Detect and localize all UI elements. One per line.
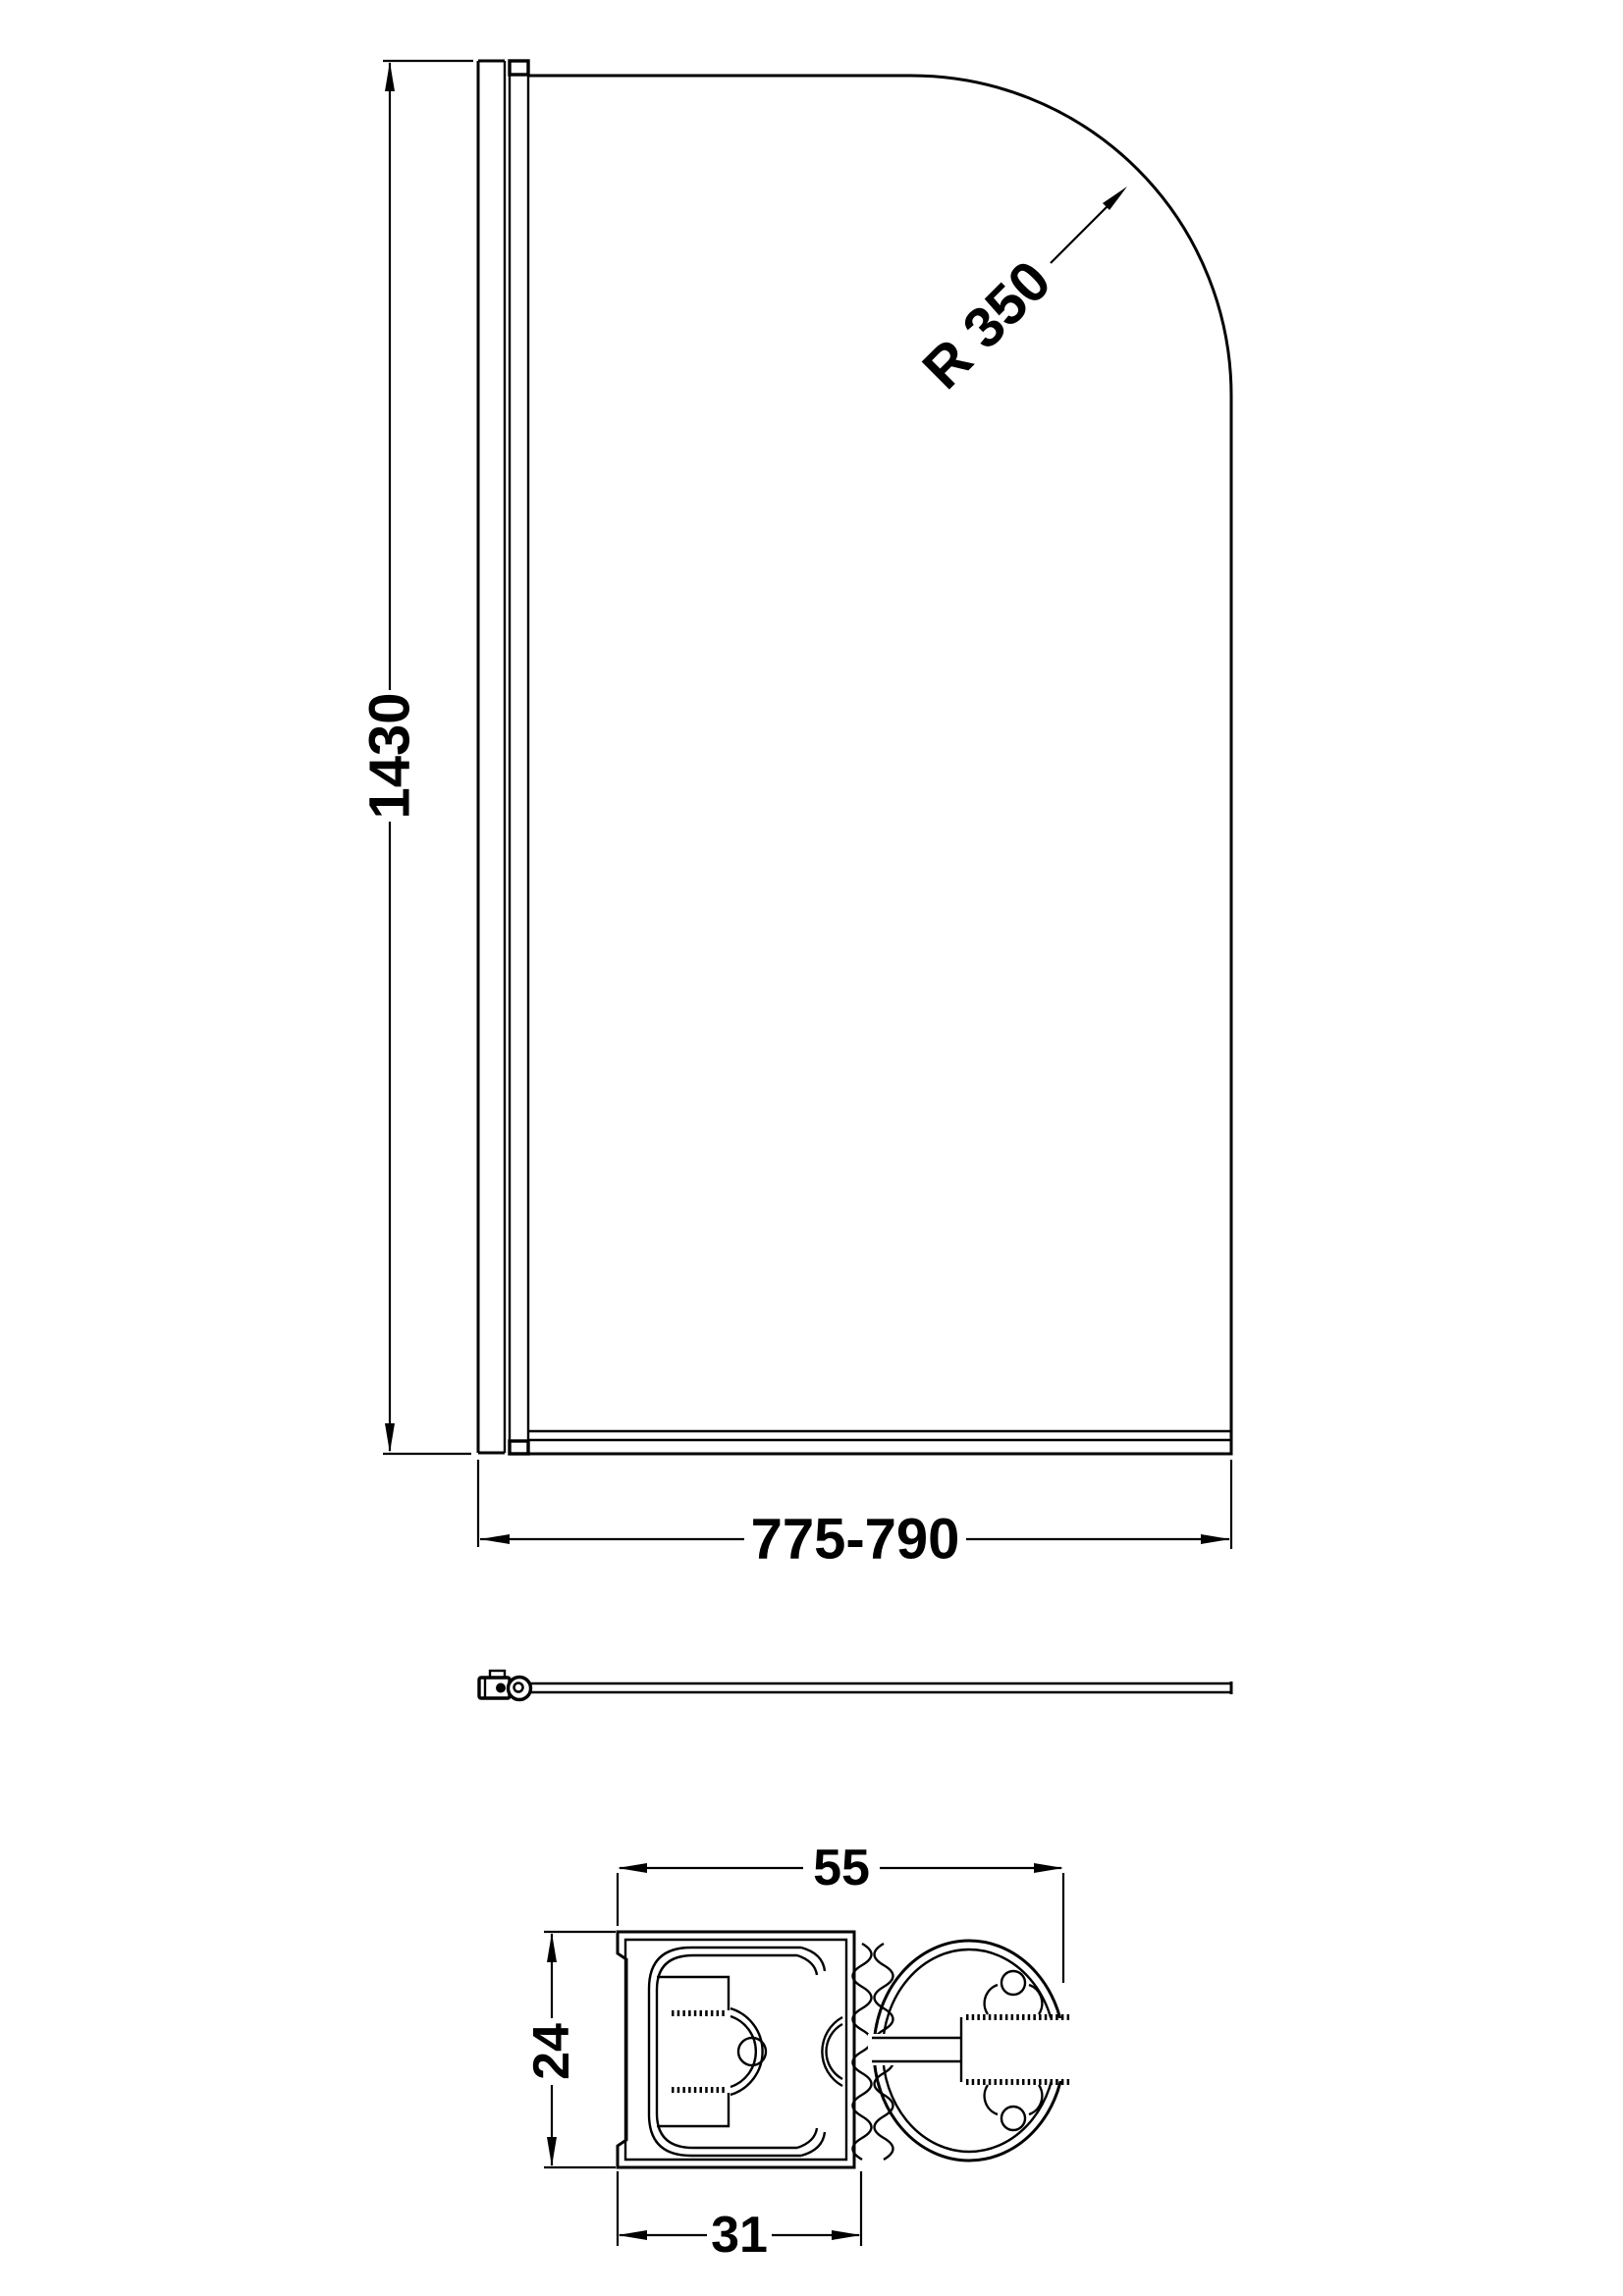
radius-dimension-label: R 350 [910, 248, 1062, 400]
wall-profile [478, 61, 528, 1454]
hinge-assembly [479, 1671, 531, 1700]
dimension-height: 1430 [358, 61, 474, 1454]
glass-strip [530, 1682, 1231, 1694]
section-wall-channel [618, 1932, 854, 2167]
bottom-rail [528, 1431, 1231, 1440]
section-pivot-profile [868, 1941, 1082, 2161]
width-dimension-label: 775-790 [751, 1508, 960, 1572]
section-top-jaw [657, 1977, 729, 2010]
front-elevation-view [478, 61, 1231, 1454]
profile-section-view: 55 24 31 [523, 1840, 1082, 2264]
glass-panel-outline [528, 76, 1231, 1454]
technical-drawing-canvas: 1430 775-790 R 350 [0, 0, 1623, 2296]
dimension-section-depth: 24 [523, 1932, 616, 2167]
dimension-section-width: 55 [618, 1840, 1063, 1983]
section-width-label: 55 [813, 1840, 870, 1896]
hinge-pin-hole [514, 1683, 523, 1692]
bottom-pivot-bracket [510, 1441, 528, 1454]
dimension-width: 775-790 [478, 1460, 1231, 1572]
hinge-pin [496, 1683, 506, 1693]
top-plan-view [479, 1671, 1231, 1700]
section-bottom-jaw [657, 2093, 729, 2126]
height-dimension-label: 1430 [358, 692, 422, 819]
section-channel-width-label: 31 [711, 2207, 768, 2264]
dimension-section-channel-width: 31 [618, 2171, 861, 2264]
top-pivot-cap [510, 61, 528, 75]
radius-leader: R 350 [910, 187, 1127, 401]
section-depth-label: 24 [523, 2023, 580, 2080]
